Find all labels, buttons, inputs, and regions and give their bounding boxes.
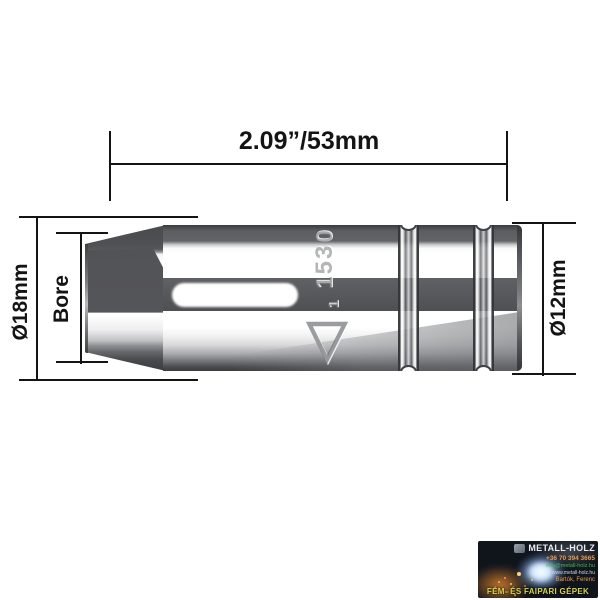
contact-name: Bartók, Ferenc	[556, 577, 595, 583]
spark-dots	[498, 581, 500, 583]
nozzle-tip-edge	[85, 244, 88, 353]
groove-ring	[398, 225, 419, 371]
dimension-line	[36, 216, 38, 381]
watermark-header: METALL-HOLZ	[514, 543, 595, 553]
company-tagline: FÉM- ÉS FAIPARI GÉPEK	[478, 587, 598, 596]
website-url: www.metall-holz.hu	[552, 570, 595, 576]
engraving-triangle-logo-icon: ▽	[301, 311, 353, 367]
dimension-tick	[19, 216, 198, 218]
dimension-line	[110, 163, 508, 165]
outer-diameter-label: Ø18mm	[8, 242, 34, 362]
dimension-tick	[512, 222, 576, 224]
company-logo-icon	[514, 544, 525, 553]
dimension-tick	[512, 373, 576, 375]
length-dimension-label: 2.09”/53mm	[110, 124, 508, 158]
dimension-line	[80, 232, 82, 364]
bore-label: Bore	[49, 259, 75, 339]
dealer-watermark: METALL-HOLZ +36 70 394 3665 info@metall-…	[478, 541, 598, 598]
email-address: info@metall-holz.hu	[546, 563, 595, 569]
nozzle-highlight-slot	[172, 283, 298, 307]
nozzle-barrel: 1530 1 ▽	[163, 225, 522, 371]
dimension-line	[542, 222, 544, 376]
engraving-number: 1530	[300, 225, 350, 299]
dimension-tick	[109, 131, 111, 201]
dimension-tick	[19, 379, 198, 381]
product-image-gas-nozzle: 2.09”/53mm Ø18mm Bore Ø12mm 1530 1	[0, 0, 600, 600]
phone-number: +36 70 394 3665	[546, 555, 595, 562]
rear-diameter-label: Ø12mm	[546, 238, 572, 358]
dimension-tick	[506, 131, 508, 201]
nozzle-rear-edge	[517, 225, 522, 371]
dimension-tick	[56, 361, 108, 363]
dimension-tick	[56, 232, 108, 234]
company-name: METALL-HOLZ	[528, 543, 595, 553]
groove-ring	[473, 225, 494, 371]
